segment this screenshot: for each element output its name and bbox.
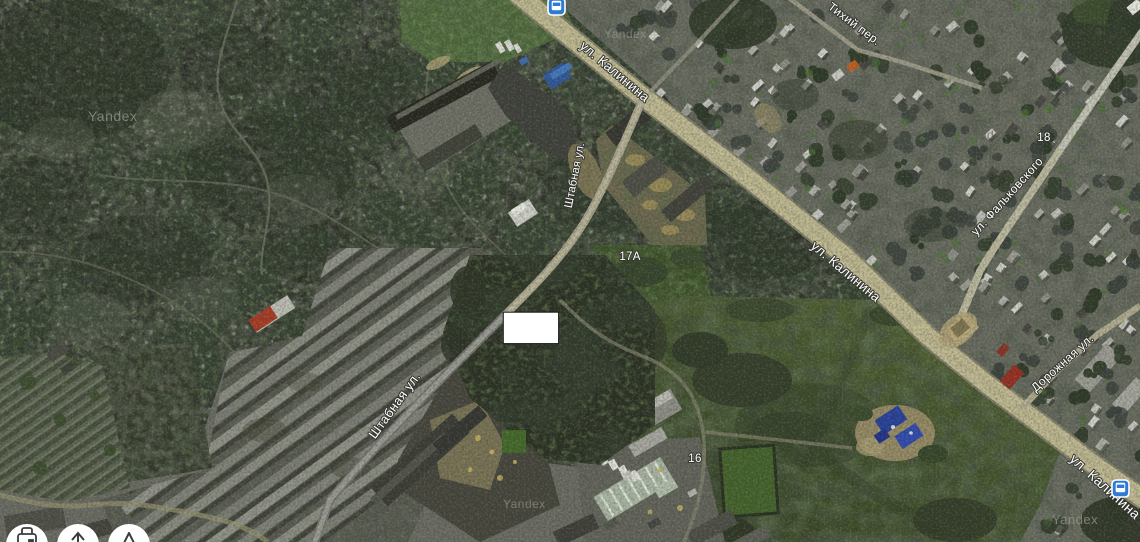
svg-text:Yandex: Yandex	[965, 128, 1008, 142]
svg-text:16: 16	[688, 453, 701, 465]
svg-text:18: 18	[1037, 132, 1050, 144]
svg-text:Yandex: Yandex	[88, 108, 137, 124]
svg-text:Yandex: Yandex	[503, 497, 546, 511]
svg-text:Yandex: Yandex	[1052, 512, 1098, 527]
svg-text:17А: 17А	[619, 251, 640, 263]
svg-text:Yandex: Yandex	[604, 27, 647, 41]
